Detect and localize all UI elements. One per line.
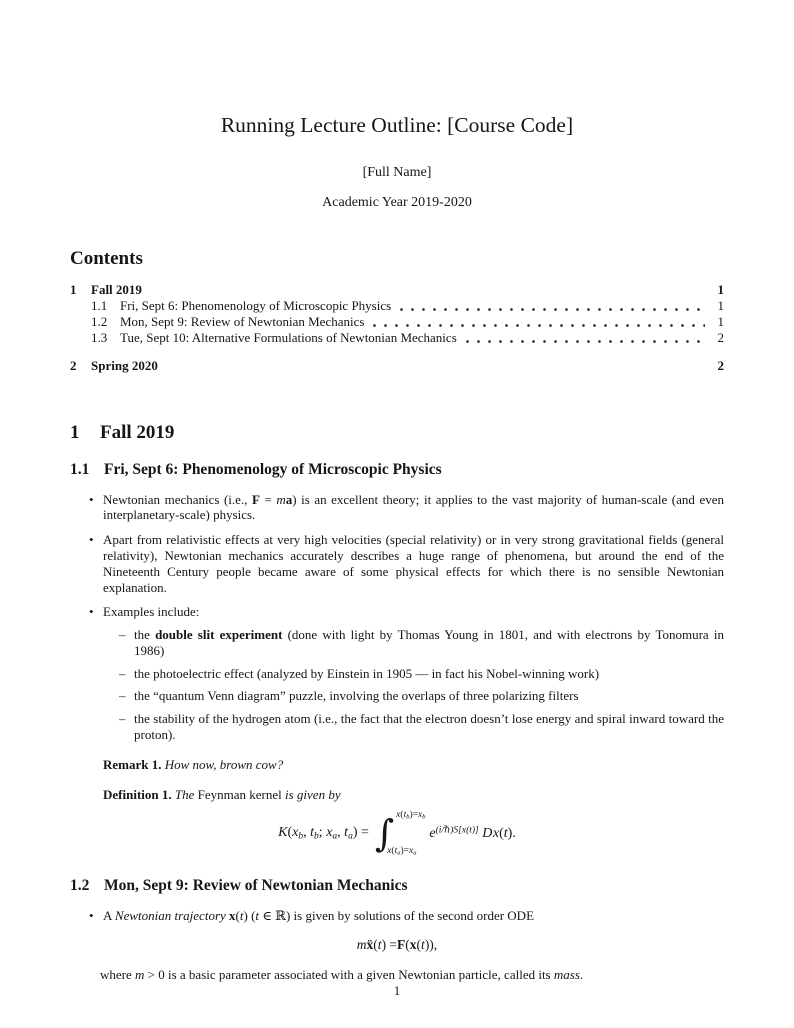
newton-ode-formula: m ẍ(t) = F(x(t)), xyxy=(70,937,724,953)
toc-leader xyxy=(147,282,705,298)
document-title: Running Lecture Outline: [Course Code] xyxy=(70,112,724,138)
table-of-contents: 1 Fall 2019 1 1.1 Fri, Sept 6: Phenomeno… xyxy=(70,282,724,374)
formula-integrand: e(i/ℏ)S[x(t)] Dx(t). xyxy=(429,825,515,842)
remark-block: Remark 1. How now, brown cow? xyxy=(103,757,724,773)
toc-entry-1-1[interactable]: 1.1 Fri, Sept 6: Phenomenology of Micros… xyxy=(70,298,724,314)
toc-entry-label: Fri, Sept 6: Phenomenology of Microscopi… xyxy=(120,298,391,314)
toc-entry-label: Mon, Sept 9: Review of Newtonian Mechani… xyxy=(120,314,364,330)
toc-entry-1-2[interactable]: 1.2 Mon, Sept 9: Review of Newtonian Mec… xyxy=(70,314,724,330)
integral-lower-limit: x(ta)=xa xyxy=(387,846,425,857)
paragraph: where m > 0 is a basic parameter associa… xyxy=(70,967,724,983)
toc-entry-fall-2019[interactable]: 1 Fall 2019 1 xyxy=(70,282,724,298)
subsection-number: 1.2 xyxy=(70,877,104,896)
toc-dot-leader xyxy=(369,314,705,330)
subsection-heading-1-1: 1.1 Fri, Sept 6: Phenomenology of Micros… xyxy=(70,461,724,480)
page-number: 1 xyxy=(0,983,794,999)
sub-bullet-item: the “quantum Venn diagram” puzzle, invol… xyxy=(70,688,724,704)
integral-upper-limit: x(tb)=xb xyxy=(396,810,425,821)
bullet-item: A Newtonian trajectory x(t) (t ∈ ℝ) is g… xyxy=(70,908,724,924)
subsection-number: 1.1 xyxy=(70,461,104,480)
toc-entry-label: Tue, Sept 10: Alternative Formulations o… xyxy=(120,330,457,346)
bullet-item: Newtonian mechanics (i.e., F = ma) is an… xyxy=(70,492,724,524)
toc-entry-page: 2 xyxy=(710,358,724,374)
toc-entry-1-3[interactable]: 1.3 Tue, Sept 10: Alternative Formulatio… xyxy=(70,330,724,346)
toc-entry-page: 1 xyxy=(710,314,724,330)
bullet-item: Examples include: xyxy=(70,604,724,620)
feynman-kernel-formula: K(xb, tb; xa, ta) = ∫ x(tb)=xb x(ta)=xa … xyxy=(70,810,724,856)
document-date: Academic Year 2019-2020 xyxy=(70,194,724,211)
toc-leader xyxy=(163,358,705,374)
toc-entry-number: 1.1 xyxy=(91,298,120,314)
integral-limits: x(tb)=xb x(ta)=xa xyxy=(394,810,425,856)
toc-entry-spring-2020[interactable]: 2 Spring 2020 2 xyxy=(70,358,724,374)
subsection-title: Fri, Sept 6: Phenomenology of Microscopi… xyxy=(104,461,442,480)
section-title: Fall 2019 xyxy=(100,421,174,444)
integral: ∫ x(tb)=xb x(ta)=xa xyxy=(375,810,426,856)
toc-entry-number: 2 xyxy=(70,358,91,374)
definition-block: Definition 1. The Feynman kernel is give… xyxy=(103,787,724,803)
toc-dot-leader xyxy=(396,298,705,314)
bullet-item: Apart from relativistic effects at very … xyxy=(70,532,724,595)
document-author: [Full Name] xyxy=(70,164,724,181)
toc-entry-label: Spring 2020 xyxy=(91,358,158,374)
contents-heading: Contents xyxy=(70,247,724,270)
section-number: 1 xyxy=(70,421,100,444)
subsection-title: Mon, Sept 9: Review of Newtonian Mechani… xyxy=(104,877,408,896)
sub-bullet-item: the double slit experiment (done with li… xyxy=(70,627,724,659)
sub-bullet-item: the stability of the hydrogen atom (i.e.… xyxy=(70,711,724,743)
toc-dot-leader xyxy=(462,330,705,346)
toc-entry-page: 2 xyxy=(710,330,724,346)
toc-entry-page: 1 xyxy=(710,298,724,314)
section-heading-fall-2019: 1 Fall 2019 xyxy=(70,421,724,444)
toc-entry-number: 1.2 xyxy=(91,314,120,330)
toc-entry-page: 1 xyxy=(710,282,724,298)
document-page: Running Lecture Outline: [Course Code] [… xyxy=(0,0,794,1028)
toc-entry-number: 1.3 xyxy=(91,330,120,346)
toc-entry-label: Fall 2019 xyxy=(91,282,142,298)
formula-lhs: K(xb, tb; xa, ta) = xyxy=(278,824,369,843)
toc-entry-number: 1 xyxy=(70,282,91,298)
sub-bullet-item: the photoelectric effect (analyzed by Ei… xyxy=(70,666,724,682)
subsection-heading-1-2: 1.2 Mon, Sept 9: Review of Newtonian Mec… xyxy=(70,877,724,896)
